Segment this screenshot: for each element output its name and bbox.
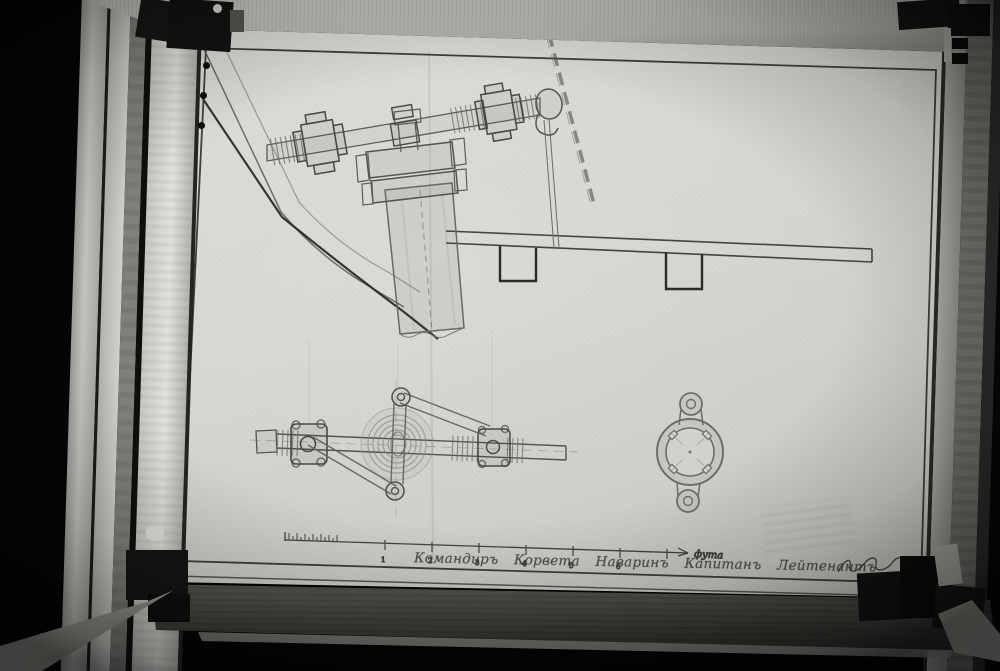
shaft-tee-collar bbox=[388, 104, 420, 146]
knob-highlight bbox=[146, 526, 164, 541]
deck-beam bbox=[446, 231, 872, 262]
plan-nut-right bbox=[478, 426, 510, 468]
shaft-nut-right bbox=[472, 81, 526, 144]
scale-tick-1: 1 bbox=[381, 556, 385, 564]
ring-flange-view bbox=[657, 393, 723, 512]
clamp-bottom-left bbox=[126, 550, 188, 600]
clamp-catch bbox=[952, 53, 968, 64]
shaft-nut-left bbox=[290, 109, 349, 176]
bottom-lug bbox=[677, 490, 699, 512]
tension-rod bbox=[544, 119, 559, 248]
clamp-catch bbox=[952, 38, 968, 49]
bolt-highlight bbox=[213, 4, 222, 13]
clamp-bottom-left-block bbox=[148, 594, 190, 622]
side-elevation-view bbox=[203, 34, 872, 428]
plan-view bbox=[250, 380, 578, 516]
clamp-top-left-tab bbox=[230, 10, 244, 32]
spring-hub bbox=[361, 408, 433, 480]
top-lug bbox=[680, 393, 702, 415]
clamp-top-right-block bbox=[948, 4, 990, 36]
metal-highlight bbox=[944, 28, 951, 62]
clamp-top-left-block bbox=[166, 0, 233, 52]
screw-head bbox=[198, 122, 205, 129]
plan-nut-left bbox=[291, 420, 327, 467]
clamp-bottom-right-block bbox=[900, 556, 938, 618]
screw-head bbox=[200, 92, 207, 99]
screw-head bbox=[203, 62, 210, 69]
photograph-of-framed-drawing: 1 2 3 4 5 6 фута Командиръ Корвета Навар… bbox=[0, 0, 1000, 671]
beam-hanger-left bbox=[500, 246, 536, 281]
beam-hanger-right bbox=[666, 252, 702, 289]
